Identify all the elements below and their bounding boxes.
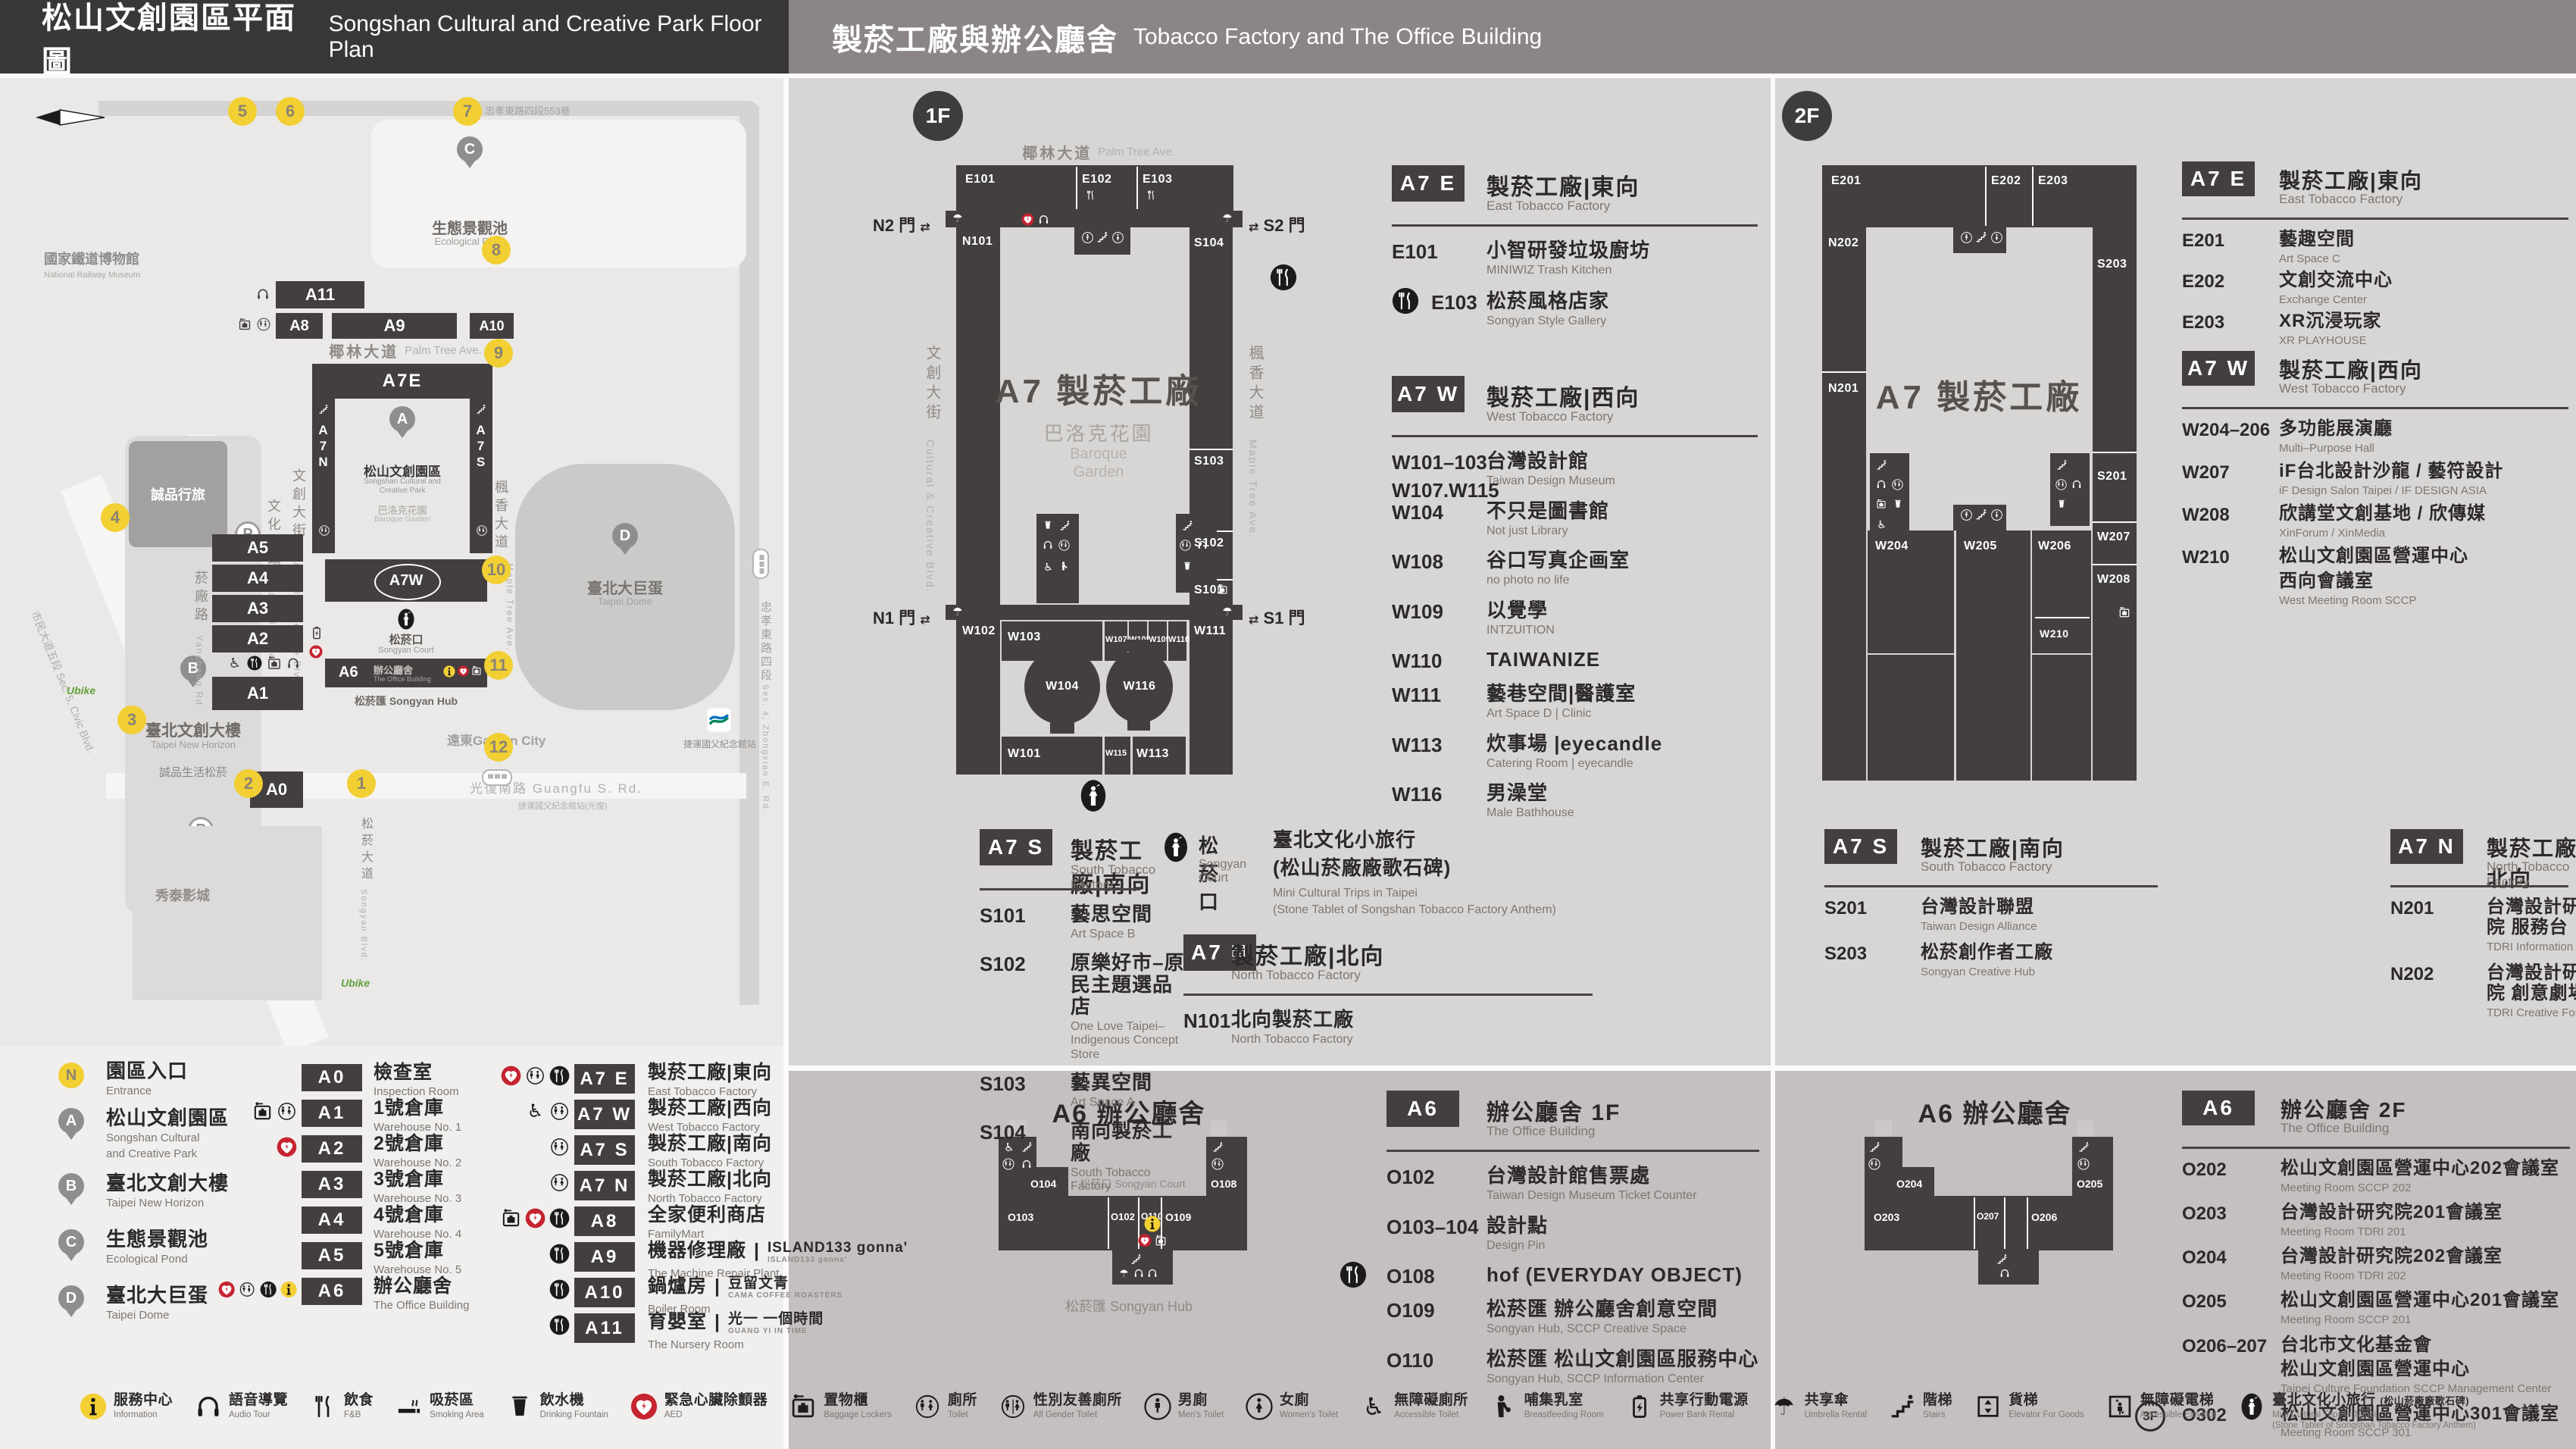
footer-label-en: Drinking Fountain	[540, 1410, 608, 1420]
eslite-hotel: 誠品行旅	[129, 441, 227, 547]
hub-label: 松菸匯 Songyan Hub	[345, 693, 467, 709]
footer-item: 臺北文化小旅行 (松山菸廠廠歌石碑)Mini Cultural Trips in…	[2238, 1393, 2476, 1430]
umbrella-icon: ☂	[952, 212, 964, 224]
stairs-icon	[2056, 459, 2068, 471]
stairs-icon	[1975, 509, 1987, 521]
venue-name-en: TDRI Information	[2487, 940, 2576, 953]
toilet-icon	[2077, 1158, 2090, 1170]
footer-item: 男廁Men's Toilet	[1144, 1393, 1224, 1420]
footer-label-en: Smoking Area	[430, 1410, 484, 1420]
section-divider	[2182, 407, 2568, 409]
venue-name-en: Meeting Room TDRI 201	[2281, 1225, 2576, 1238]
map-a4: A4	[212, 565, 303, 592]
map-pin-icon: B	[58, 1173, 84, 1199]
venue-name-zh: 以覺學	[1487, 599, 1803, 621]
room-w116: W116	[1106, 650, 1173, 723]
aed-icon	[525, 1208, 546, 1228]
room-label: W207	[2097, 530, 2131, 544]
room-label: N201	[1828, 382, 1859, 396]
venue-name-zh: 炊事場 |eyecandle	[1487, 733, 1803, 755]
section-divider	[1392, 435, 1758, 437]
map-a10: A10	[470, 313, 514, 339]
men-icon	[1144, 1393, 1171, 1420]
stairs-icon	[1876, 459, 1887, 471]
legend-badge: A8	[574, 1206, 635, 1236]
audio-icon	[1876, 479, 1887, 490]
b-label-en: Taipei New Horizon	[129, 739, 258, 750]
a7w-label: A7W	[374, 564, 438, 597]
venue-name-zh2: 松山文創園區營運中心	[2281, 1360, 2576, 1380]
plan1f-corridor-top	[946, 211, 1243, 227]
lockers-icon	[1217, 584, 1228, 595]
venue-name-zh: 台灣設計館售票處	[1487, 1165, 1805, 1187]
section-badge: A6	[1386, 1091, 1459, 1127]
room-label: N101	[962, 235, 993, 249]
room-code: S203	[1824, 944, 1867, 965]
legend-zh: 檢查室	[374, 1062, 459, 1082]
songyan-ave-zh: 松菸大道	[356, 817, 374, 884]
room-code: E101	[1392, 240, 1438, 264]
footer-label-zh: 服務中心	[114, 1393, 173, 1407]
fnb-icon	[1085, 189, 1096, 201]
list-row: W104不只是圖書館Not just Library	[1392, 500, 1803, 539]
toilet-icon	[1868, 1158, 1881, 1170]
bus-icon	[482, 769, 512, 786]
accessible-icon: ♿	[525, 1101, 546, 1122]
toilet-icon	[2055, 479, 2068, 490]
footer-label-zh: 無障礙電梯	[2140, 1393, 2216, 1407]
audio-icon	[1038, 214, 1049, 225]
fnb-icon	[549, 1208, 570, 1228]
section-title-en: The Office Building	[1487, 1124, 1595, 1139]
men-icon	[1961, 509, 1972, 521]
fnb-icon	[1270, 264, 1297, 291]
fnb-icon	[549, 1244, 570, 1264]
venue-name-zh: 南向製菸工廠	[1071, 1120, 1186, 1164]
venue-name-en: XR PLAYHOUSE	[2279, 334, 2576, 347]
umbrella-icon: ☂	[1221, 212, 1233, 224]
list-row: W210松山文創園區營運中心西向會議室West Meeting Room SCC…	[2182, 546, 2576, 607]
room-code: W204–206	[2182, 420, 2270, 441]
railway-museum-label: 國家鐵道博物館 National Railway Museum	[44, 249, 140, 280]
list-row: W113炊事場 |eyecandleCatering Room | eyecan…	[1392, 733, 1803, 771]
list-row: W109以覺學INTZUITION	[1392, 599, 1803, 638]
footer-item: ♿無障礙廁所Accessible Toilet	[1360, 1393, 1468, 1420]
a6plan2f-bar	[1865, 1196, 2113, 1250]
mrt-logo	[706, 707, 732, 733]
plan1f-left-wing	[956, 227, 1000, 775]
legend-badge: A7 W	[574, 1100, 635, 1129]
section-title-zh: 製菸工廠|西向	[1487, 379, 1640, 412]
a6plan1f-hub-label: 松菸匯 Songyan Hub	[1053, 1296, 1205, 1316]
park-map: 忠孝東路四段553巷 國家鐵道博物館 National Railway Muse…	[0, 78, 783, 1046]
legend-badge: A4	[302, 1206, 362, 1234]
list-row: N202台灣設計研究院 創意劇場TDRI Creative Forum	[2390, 963, 2576, 1019]
pin-d: D	[612, 523, 638, 549]
section-title-en: East Tobacco Factory	[1487, 199, 1610, 214]
list-row: E202文創交流中心Exchange Center	[2182, 271, 2576, 306]
legend-en: South Tobacco Factory	[648, 1156, 772, 1169]
footer-item: 服務中心Information	[80, 1393, 173, 1420]
section-badge: A7 S	[1824, 829, 1897, 864]
footer-label-en: Men's Toilet	[1178, 1410, 1224, 1420]
list-row: O205松山文創園區營運中心201會議室Meeting Room SCCP 20…	[2182, 1291, 2576, 1326]
footer-label-en: Accessible Elevator	[2140, 1410, 2216, 1420]
list-row: S102原樂好市–原民主題選品店One Love Taipei–Indigeno…	[980, 952, 1186, 1062]
map-a11: A11	[276, 281, 364, 308]
garden-label-en: Baroque Garden	[345, 515, 460, 524]
section-badge: A7 S	[980, 829, 1052, 865]
footer-item: ☂共享傘Umbrella Rental	[1771, 1393, 1867, 1420]
section-divider	[1386, 1150, 1759, 1152]
ubike-label: Ubike	[341, 977, 370, 989]
room-code: W210	[2182, 547, 2230, 568]
legend-en: Warehouse No. 3	[374, 1192, 461, 1205]
footer-label-zh: 哺集乳室	[1524, 1393, 1604, 1407]
aed-icon	[630, 1393, 658, 1420]
legend-zh: 5號倉庫	[374, 1241, 461, 1260]
floor-2f-badge: 2F	[1782, 91, 1832, 141]
yanchang-label-zh: 菸廠路	[191, 571, 211, 625]
list-row: O110松菸匯 松山文創園區服務中心Songyan Hub, SCCP Info…	[1386, 1348, 1805, 1387]
venue-name-zh: 台灣設計研究院 服務台	[2487, 897, 2576, 938]
umbrella-icon: ☂	[1221, 606, 1233, 618]
room-code: W111	[1392, 684, 1441, 707]
venue-name-en: MINIWIZ Trash Kitchen	[1487, 264, 1803, 277]
fnb-icon	[549, 1066, 570, 1086]
footer-label-en: Information	[114, 1410, 173, 1420]
lockers-icon	[238, 318, 252, 331]
room-code: E103	[1431, 291, 1477, 315]
accessible-icon: ♿	[1876, 518, 1887, 530]
section-title-zh: 辦公廳舍 1F	[1487, 1094, 1621, 1127]
toilet-icon	[1179, 540, 1192, 551]
venue-name-zh: 文創交流中心	[2279, 271, 2576, 291]
section-divider	[1824, 885, 2158, 887]
venue-name-zh: XR沉浸玩家	[2279, 311, 2576, 332]
north-compass-icon	[34, 108, 107, 127]
goods-icon	[1974, 1393, 2002, 1420]
toilet-icon	[239, 1279, 255, 1300]
legend-en: Inspection Room	[374, 1085, 459, 1098]
gate-s1: ⇄ S1 門	[1249, 605, 1305, 629]
venue-name-en: Catering Room | eyecandle	[1487, 757, 1803, 771]
venue-name-en: INTZUITION	[1487, 624, 1803, 637]
stairs-icon	[1869, 1141, 1880, 1153]
venue-name-zh: 松菸創作者工廠	[1921, 943, 2203, 963]
audio-icon	[1133, 1268, 1144, 1278]
room-label: E203	[2038, 174, 2068, 188]
lockers-icon	[501, 1208, 521, 1228]
plan2f-right-wing	[2093, 227, 2137, 781]
legend-building-A11: A11育嬰室|光一 一個時間GUANG YI IN TIMEThe Nurser…	[494, 1313, 858, 1348]
room-code: E202	[2182, 271, 2224, 293]
women-icon	[1112, 232, 1124, 243]
map-a5: A5	[212, 534, 303, 562]
stairs-icon	[1182, 520, 1193, 531]
footer-label-zh: 共享傘	[1805, 1393, 1867, 1407]
legend-badge: A5	[302, 1242, 362, 1269]
info-icon	[443, 665, 455, 678]
footer-label-en: Umbrella Rental	[1805, 1410, 1867, 1420]
list-row: W207iF台北設計沙龍 / 藝符設計iF Design Salon Taipe…	[2182, 462, 2576, 497]
room-code: S101	[980, 904, 1026, 928]
room-label: W102	[962, 624, 996, 638]
audio-icon	[1147, 1268, 1158, 1278]
map-marker: 3	[117, 706, 146, 734]
legend-en: Warehouse No. 4	[374, 1228, 461, 1241]
map-marker: 5	[228, 97, 257, 126]
footer-label-en: Power Bank Rental	[1660, 1410, 1749, 1420]
venue-name-en: iF Design Salon Taipei / IF DESIGN ASIA	[2279, 484, 2576, 497]
women-icon	[1991, 232, 2002, 243]
entrance-marker-icon: N	[58, 1062, 84, 1088]
lockers-icon	[267, 656, 282, 671]
a6plan2f-title: A6 辦公廳舍	[1881, 1093, 2109, 1130]
list-row: W110TAIWANIZE	[1392, 649, 1803, 671]
toilet-icon	[256, 318, 271, 331]
footer-label-zh: 飲水機	[540, 1393, 608, 1407]
venue-name-en: Meeting Room TDRI 202	[2281, 1269, 2576, 1282]
venue-name-zh: 男澡堂	[1487, 782, 1803, 804]
section-title-en: The Office Building	[2281, 1121, 2389, 1136]
map-marker: 11	[484, 651, 513, 680]
map-marker: 7	[453, 97, 482, 126]
drinking-icon	[1043, 520, 1053, 530]
pin-a: A	[389, 406, 415, 432]
venue-name-en: West Meeting Room SCCP	[2279, 594, 2576, 607]
plan1f-right-wing	[1190, 227, 1233, 775]
legend-zh: 製菸工廠|東向	[648, 1062, 772, 1082]
section-title-en: South Tobacco Factory	[1921, 859, 2052, 875]
legend-badge: A1	[302, 1100, 362, 1127]
room-code: W109	[1392, 600, 1443, 624]
floor-1f-badge: 1F	[913, 91, 963, 141]
list-row: E103松菸風格店家Songyan Style Gallery	[1392, 290, 1803, 329]
venue-name-en: Songyan Style Gallery	[1487, 315, 1803, 328]
breastfeeding-icon	[1059, 561, 1070, 571]
powerbank-icon	[1626, 1393, 1653, 1420]
map-marker: 4	[101, 503, 130, 532]
venue-name-zh: TAIWANIZE	[1487, 649, 1803, 671]
venue-name-zh: 松菸匯 松山文創園區服務中心	[1487, 1348, 1805, 1370]
map-marker: 10	[482, 556, 511, 584]
map-a1: A1	[212, 677, 303, 710]
road-top-label: 忠孝東路四段553巷	[485, 103, 571, 117]
civic-label: 市民大道五段 Sec. 5, Civic Blvd.	[27, 609, 98, 756]
plan2f-center-label: A7 製菸工廠	[1865, 370, 2093, 418]
map-marker: 6	[276, 97, 305, 126]
venue-name-en: Songyan Hub, SCCP Creative Space	[1487, 1322, 1805, 1336]
legend-en: FamilyMart	[648, 1228, 766, 1241]
venue-name-en: Design Pin	[1487, 1239, 1805, 1253]
legend-badge: A7 E	[574, 1064, 635, 1094]
footer-label-en: AED	[664, 1410, 768, 1420]
drinking-icon	[1182, 561, 1193, 571]
room-code: W208	[2182, 505, 2230, 526]
songyan-ave-en: Songyan Blvd.	[359, 889, 368, 962]
footer-label-en: Audio Tour	[229, 1410, 288, 1420]
maple-label-zh: 楓香大道	[491, 480, 511, 552]
footer-icon-legend: 服務中心Information語音導覽Audio Tour飲食F&B吸菸區Smo…	[80, 1393, 1671, 1430]
women-icon	[1991, 509, 2002, 521]
stairs-icon	[1130, 1253, 1142, 1265]
room-code: O205	[2182, 1291, 2227, 1313]
stairs-icon	[2078, 1141, 2090, 1153]
list-row: O103–104設計點Design Pin	[1386, 1215, 1805, 1253]
plan2f-topbar	[1822, 165, 2137, 227]
footer-label-zh: 男廁	[1178, 1393, 1224, 1407]
venue-name-zh: 藝思空間	[1071, 903, 1186, 925]
a7s-label: A7S	[473, 423, 488, 471]
footer-label-en: All Gender Toilet	[1033, 1410, 1122, 1420]
room-label: S201	[2097, 470, 2127, 484]
legend-building-A9: A9機器修理廠|ISLAND133 gonna'ISLAND133 gonna'…	[494, 1242, 858, 1277]
map-a8: A8	[276, 313, 323, 339]
plan1f-corridor-bottom	[946, 605, 1243, 620]
plan2f-left-wing	[1822, 227, 1866, 781]
room-code: S104	[980, 1121, 1026, 1144]
info-icon	[80, 1393, 107, 1420]
section-title-zh: 製菸工廠|北向	[1231, 937, 1384, 971]
list-row: W111藝巷空間|醫護室Art Space D | Clinic	[1392, 683, 1803, 721]
smoking-icon	[395, 1393, 423, 1420]
a7n-label: A7N	[315, 423, 330, 471]
allgender-icon	[999, 1393, 1027, 1420]
legend-badge: A0	[302, 1064, 362, 1091]
footer-item: 無障礙電梯Accessible Elevator	[2106, 1393, 2216, 1420]
footer-item: 飲水機Drinking Fountain	[506, 1393, 608, 1420]
venue-name-en: Art Space B	[1071, 928, 1186, 941]
lockers-icon	[252, 1101, 273, 1122]
venue-name-en: Male Bathhouse	[1487, 806, 1803, 820]
street-label: 楓香大道	[1244, 345, 1266, 424]
umbrella-icon: ☂	[952, 606, 964, 618]
brand-name: 豆留文青	[728, 1276, 843, 1291]
venue-name-en: Songyan Hub, SCCP Information Center	[1487, 1372, 1805, 1386]
legend-en: Warehouse No. 1	[374, 1121, 461, 1134]
venue-name-en: South Tobacco Factory	[1071, 1166, 1186, 1194]
park-label-en1: Songshan Cultural and	[345, 477, 460, 486]
list-row: W108谷口写真企画室no photo no life	[1392, 549, 1803, 588]
list-row: S201台灣設計聯盟Taiwan Design Alliance	[1824, 897, 2203, 933]
plan1f-topbar	[956, 165, 1233, 211]
footer-label-en: Accessible Toilet	[1394, 1410, 1468, 1420]
footer-item: 階梯Stairs	[1889, 1393, 1952, 1420]
lockers-icon	[1876, 499, 1887, 509]
legend-badge: A11	[574, 1313, 635, 1343]
room-code: W207	[2182, 462, 2230, 484]
legend-en: Warehouse No. 5	[374, 1263, 461, 1276]
yanchang-label-en: Yanchang Rd.	[194, 635, 205, 710]
footer-label-en: Elevator For Goods	[2009, 1410, 2084, 1420]
footer-label-zh: 吸菸區	[430, 1393, 484, 1407]
section-title-zh: 製菸工廠|東向	[1487, 168, 1640, 202]
section-divider	[1392, 224, 1758, 227]
footer-label-zh: 飲食	[344, 1393, 374, 1407]
toilet-icon	[476, 525, 488, 536]
toilet-icon	[1211, 1158, 1224, 1170]
audio-icon	[195, 1393, 222, 1420]
ubike-label: Ubike	[67, 684, 95, 696]
accessible-icon: ♿	[1360, 1393, 1387, 1420]
footer-label-zh: 階梯	[1923, 1393, 1952, 1407]
audio-icon	[1999, 1268, 2010, 1278]
footer-label-zh: 語音導覽	[229, 1393, 288, 1407]
lockers-icon	[1155, 1235, 1167, 1247]
venue-name-zh: 松菸風格店家	[1487, 290, 1803, 312]
venue-name-en: Taiwan Design Museum Ticket Counter	[1487, 1189, 1805, 1203]
list-row: W116男澡堂Male Bathhouse	[1392, 782, 1803, 821]
list-row: E203XR沉浸玩家XR PLAYHOUSE	[2182, 311, 2576, 347]
list-row: W204–206多功能展演廳Multi–Purpose Hall	[2182, 419, 2576, 455]
venue-name-en: XinForum / XinMedia	[2279, 527, 2576, 540]
footer-item: 置物櫃Baggage Lockers	[789, 1393, 892, 1420]
room-code: O109	[1386, 1299, 1435, 1322]
list-row: S104南向製菸工廠South Tobacco Factory	[980, 1120, 1186, 1194]
venue-name-en: Art Space D | Clinic	[1487, 707, 1803, 721]
venue-name-zh: 原樂好市–原民主題選品店	[1071, 952, 1186, 1018]
map-marker: 1	[347, 769, 376, 798]
gate-n1: N1 門 ⇄	[873, 605, 930, 629]
footer-label-zh: 女廁	[1280, 1393, 1338, 1407]
footer-label-en: Stairs	[1923, 1410, 1952, 1420]
venue-name-zh: 台灣設計聯盟	[1921, 897, 2203, 918]
toilet-icon	[549, 1172, 570, 1193]
park-label-en2: Creative Park	[345, 487, 460, 495]
section-badge: A7 W	[2182, 351, 2255, 386]
court-label-en: Songyan Court	[361, 646, 452, 655]
list-row: O102台灣設計館售票處Taiwan Design Museum Ticket …	[1386, 1165, 1805, 1203]
street-label: 文創大街	[921, 345, 943, 424]
legend-building-A10: A10鍋爐房|豆留文青CAMA COFFEE ROASTERSBoiler Ro…	[494, 1278, 858, 1313]
stairs-icon	[476, 404, 486, 415]
venue-name-en: Songyan Creative Hub	[1921, 965, 2203, 978]
venue-name-zh: 台灣設計研究院202會議室	[2281, 1247, 2576, 1267]
songyan-court-icon	[1080, 779, 1106, 812]
room-code: W110	[1392, 649, 1443, 673]
room-w104: W104	[1024, 649, 1100, 724]
venue-name-en: Meeting Room SCCP 202	[2281, 1181, 2576, 1194]
legend-zh: 製菸工廠|西向	[648, 1098, 772, 1118]
room-label: E101	[965, 173, 995, 186]
footer-label-en: Mini Cultural Trips in Taipei	[2272, 1410, 2476, 1420]
women-icon	[1246, 1393, 1273, 1420]
footer-item: 哺集乳室Breastfeeding Room	[1490, 1393, 1604, 1420]
map-pin-icon: D	[58, 1285, 84, 1311]
legend-badge: A3	[302, 1171, 362, 1198]
a7e-label: A7E	[312, 364, 492, 399]
venue-name-en: Art Space C	[2279, 252, 2576, 265]
room-code: S103	[980, 1072, 1026, 1096]
room-code: W116	[1392, 783, 1443, 806]
list-row: O203台灣設計研究院201會議室Meeting Room TDRI 201	[2182, 1203, 2576, 1238]
aed-icon	[501, 1066, 521, 1086]
room-label: E201	[1831, 174, 1861, 188]
room-label: W111	[1194, 624, 1226, 638]
venue-name-zh: 松山文創園區營運中心201會議室	[2281, 1291, 2576, 1311]
legend-building-A8: A8全家便利商店FamilyMart	[494, 1206, 858, 1241]
room-label: E202	[1991, 174, 2021, 188]
legend-zh: 製菸工廠|北向	[648, 1169, 772, 1189]
room-code: W108	[1392, 550, 1443, 574]
venue-name-zh: 台北市文化基金會	[2281, 1335, 2576, 1356]
toilet-icon	[1058, 540, 1071, 551]
brand-name: 光一 一個時間	[728, 1312, 824, 1326]
dome-label-zh: 臺北大巨蛋	[564, 576, 686, 598]
accessible-icon: ♿	[1043, 561, 1054, 572]
footer-item: 共享行動電源Power Bank Rental	[1626, 1393, 1749, 1420]
